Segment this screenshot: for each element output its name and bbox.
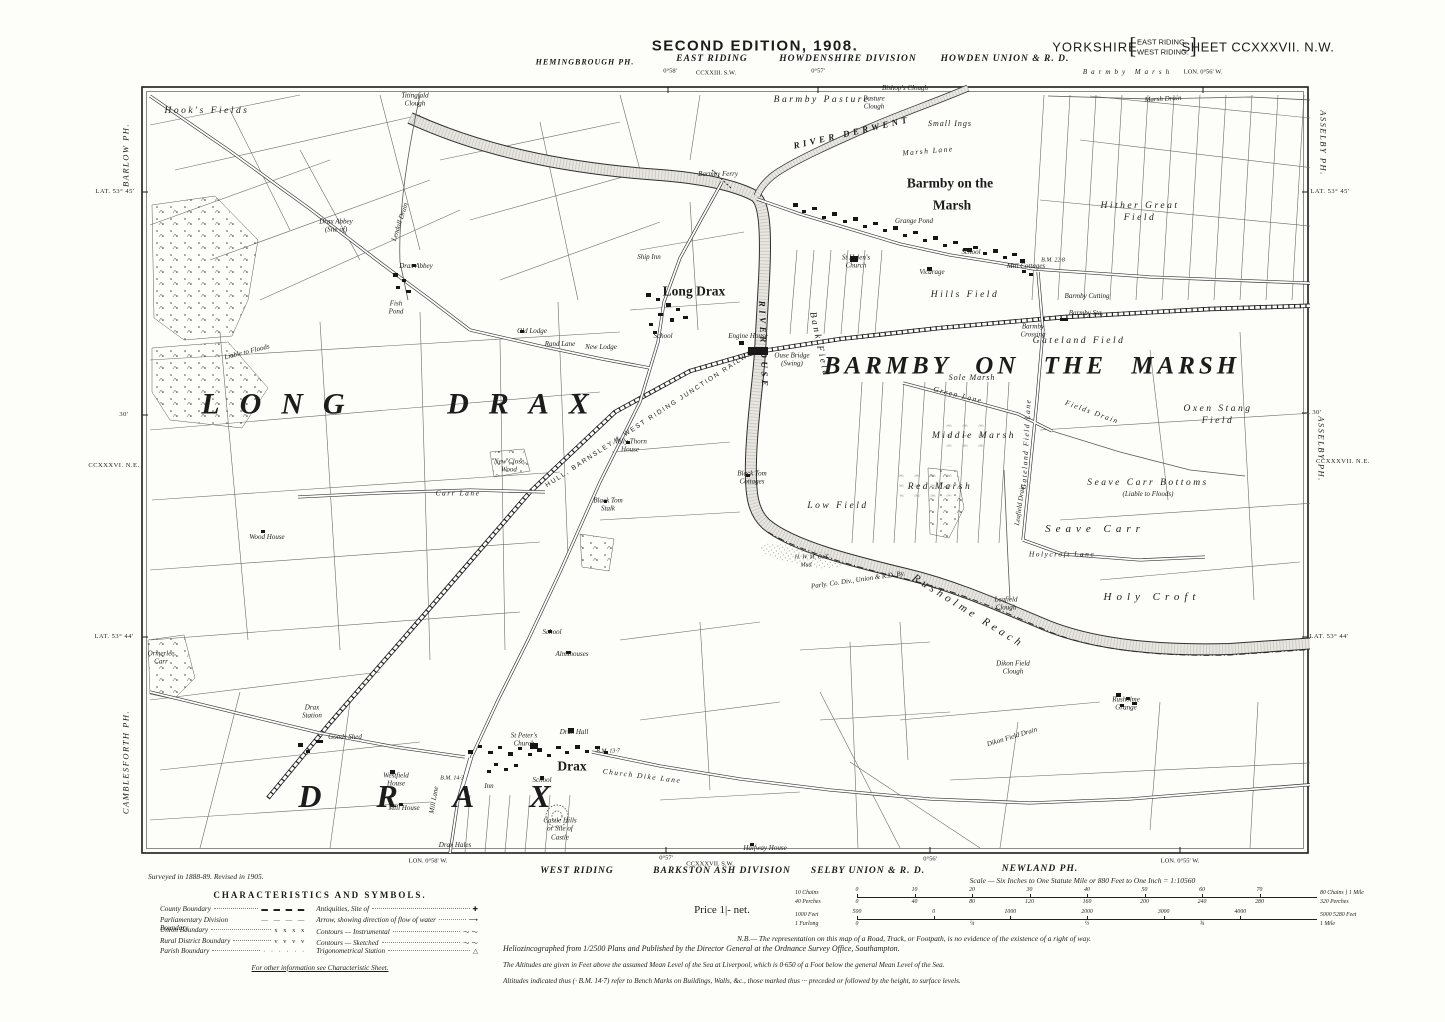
scale-tick-label: 10 Chains xyxy=(795,890,819,896)
union-label: HOWDEN UNION & R. D. xyxy=(941,54,1070,64)
scale-tick-label: 1 Furlong xyxy=(795,921,818,927)
scale-tick-label: 120 xyxy=(1025,899,1034,905)
ouse-swing-bridge xyxy=(748,347,768,355)
note-benchmarks: Altitudes indicated thus (· B.M. 14·7) r… xyxy=(503,977,961,985)
margin-label: 30' xyxy=(119,411,128,419)
scale-tick-label: 0 xyxy=(856,887,859,893)
legend-label: Arrow, showing direction of flow of wate… xyxy=(316,916,436,924)
scale-tick-label: 40 xyxy=(1084,887,1090,893)
scale-tick xyxy=(857,894,858,898)
margin-label: BARLOW PH. xyxy=(121,123,132,187)
scale-bar-chains: 10 Chains40 Perches010203040506070040801… xyxy=(795,887,1370,907)
scale-tick xyxy=(1145,894,1146,898)
legend-row: Antiquities, Site of✚ xyxy=(316,905,480,916)
legend: CHARACTERISTICS AND SYMBOLS. County Boun… xyxy=(160,890,480,972)
scale-tick xyxy=(1010,916,1011,920)
legend-leader xyxy=(393,931,460,932)
scale-tick-label: 50 xyxy=(1142,887,1148,893)
legend-leader xyxy=(212,950,260,951)
bracket-open: [ xyxy=(1129,34,1136,60)
lon-tick-bottom-3: 0°56' xyxy=(923,856,937,863)
legend-leader xyxy=(439,919,466,920)
map-canvas xyxy=(140,85,1310,855)
scale-tick-label: ½ xyxy=(1085,921,1089,927)
drains xyxy=(400,95,1310,600)
os-map-sheet: LONG DRAXBARMBY ON THE MARSHDRAXBarmby o… xyxy=(0,0,1445,1022)
scale-bar-feet: 1000 Feet1 Furlong500010002000300040000¼… xyxy=(795,909,1370,929)
lon-tick-058: 0°58' xyxy=(663,68,677,75)
west-riding-label: WEST RIDING xyxy=(540,866,614,876)
legend-symbol: v v v v xyxy=(274,938,306,945)
landmarks xyxy=(546,170,843,827)
scale-tick xyxy=(972,894,973,898)
scale-statement: Scale — Six Inches to One Statute Mile o… xyxy=(795,876,1370,885)
scale-tick-label: 40 Perches xyxy=(795,899,821,905)
scale-tick-label: ¾ xyxy=(1200,921,1204,927)
legend-row: Contours — Sketched〜〜 xyxy=(316,937,480,948)
legend-row: Union Boundaryx x x x xyxy=(160,926,306,937)
legend-label: Parish Boundary xyxy=(160,947,209,955)
scale-tick xyxy=(1240,916,1241,920)
scale-tick-label: 280 xyxy=(1255,899,1264,905)
legend-row: Rural District Boundaryv v v v xyxy=(160,937,306,948)
scale-tick xyxy=(857,916,858,920)
riding-label: EAST RIDING xyxy=(676,54,747,64)
legend-note: For other information see Characteristic… xyxy=(160,964,480,972)
legend-leader xyxy=(372,908,469,909)
adjacent-sheet-top: CCXXIII. S.W. xyxy=(696,70,736,77)
note-nb: N.B.— The representation on this map of … xyxy=(737,934,1091,943)
price-label: Price 1|- net. xyxy=(694,904,750,916)
margin-label: CCXXXVI. N.E. xyxy=(88,462,139,470)
legend-leader xyxy=(233,940,271,941)
legend-row: Trigonometrical Station△ xyxy=(316,947,480,958)
scale-tick-label: 500 xyxy=(853,909,862,915)
lon-tick-bottom-1: LON. 0°58' W. xyxy=(409,858,448,865)
legend-symbol: ✚ xyxy=(473,905,480,913)
survey-dates: Surveyed in 1888-89. Revised in 1905. xyxy=(148,872,264,881)
legend-right-column: Antiquities, Site of✚Arrow, showing dire… xyxy=(316,905,480,958)
castle-hills-earthwork xyxy=(546,805,568,827)
legend-symbol: ⟶ xyxy=(469,916,480,924)
legend-leader xyxy=(382,942,460,943)
scale-tick xyxy=(1087,894,1088,898)
scale-tick-label: 10 xyxy=(912,887,918,893)
scale-block: Scale — Six Inches to One Statute Mile o… xyxy=(795,876,1370,929)
scale-tick xyxy=(1164,916,1165,920)
legend-label: Contours — Sketched xyxy=(316,939,378,947)
scale-tick-label: 1000 Feet xyxy=(795,912,818,918)
lon-tick-057: 0°57' xyxy=(811,68,825,75)
lon-tick-bottom-2: 0°57' xyxy=(659,855,673,862)
legend-label: Contours — Instrumental xyxy=(316,928,389,936)
barkston-division-label: BARKSTON ASH DIVISION xyxy=(653,866,791,876)
legend-row: Arrow, showing direction of flow of wate… xyxy=(316,916,480,927)
legend-label: Union Boundary xyxy=(160,926,208,934)
woods xyxy=(148,196,994,699)
scale-tick-label: 1 Mile xyxy=(1320,921,1335,927)
lon-tick-056: LON. 0°56' W. xyxy=(1184,69,1223,76)
legend-symbol: · · · · · · xyxy=(263,948,306,955)
scale-tick xyxy=(915,894,916,898)
margin-label: CAMBLESFORTH PH. xyxy=(121,710,132,814)
river-derwent xyxy=(757,88,968,196)
scale-tick-label: 200 xyxy=(1140,899,1149,905)
selby-union-label: SELBY UNION & R. D. xyxy=(811,866,925,876)
edition-title: SECOND EDITION, 1908. xyxy=(652,38,859,55)
scale-tick-label: 240 xyxy=(1198,899,1207,905)
margin-label: CCXXXVII. N.E. xyxy=(1316,458,1370,466)
scale-tick-label: 0 xyxy=(856,899,859,905)
margin-label: ASSELBY PH. xyxy=(1318,110,1329,176)
legend-symbol: 〜〜 xyxy=(463,926,480,936)
scale-tick-label: 1000 xyxy=(1005,909,1017,915)
legend-label: Trigonometrical Station xyxy=(316,947,385,955)
scale-tick xyxy=(1030,894,1031,898)
scale-tick-label: 5000 5280 Feet xyxy=(1320,912,1356,918)
legend-symbol: x x x x xyxy=(274,927,306,934)
buildings xyxy=(261,203,1137,846)
note-altitudes: The Altitudes are given in Feet above th… xyxy=(503,961,945,969)
legend-leader xyxy=(214,908,258,909)
parish-hemingbrough: HEMINGBROUGH PH. xyxy=(536,58,635,67)
legend-row: County Boundary▬ ▬ ▬ ▬ xyxy=(160,905,306,916)
scale-tick-label: 0 xyxy=(856,921,859,927)
division-label: HOWDENSHIRE DIVISION xyxy=(779,54,916,64)
scale-tick xyxy=(1202,894,1203,898)
scale-tick-label: ¼ xyxy=(970,921,974,927)
barmby-marsh-label: Barmby Marsh xyxy=(1083,68,1173,76)
margin-label: LAT. 53° 45' xyxy=(95,188,134,196)
sheet-number: SHEET CCXXXVII. N.W. xyxy=(1182,40,1335,55)
margin-label: ASSELBY PH. xyxy=(1316,416,1327,482)
margin-label: LAT. 53° 45' xyxy=(1310,188,1349,196)
scale-tick-label: 3000 xyxy=(1158,909,1170,915)
scale-tick xyxy=(1087,916,1088,920)
legend-row: Contours — Instrumental〜〜 xyxy=(316,926,480,937)
note-heliozincographed: Heliozincographed from 1/2500 Plans and … xyxy=(503,944,900,953)
scale-tick-label: 60 xyxy=(1199,887,1205,893)
legend-label: County Boundary xyxy=(160,905,211,913)
scale-tick-label: 40 xyxy=(912,899,918,905)
scale-tick-label: 20 xyxy=(969,887,975,893)
scale-tick-label: 0 xyxy=(932,909,935,915)
scale-tick-label: 2000 xyxy=(1081,909,1093,915)
scale-tick-label: 4000 xyxy=(1235,909,1247,915)
scale-tick-label: 80 xyxy=(969,899,975,905)
legend-label: Antiquities, Site of xyxy=(316,905,369,913)
parish-newland: NEWLAND PH. xyxy=(1002,864,1078,874)
scale-tick-label: 80 Chains } 1 Mile xyxy=(1320,890,1364,896)
scale-tick xyxy=(934,916,935,920)
legend-leader xyxy=(388,950,470,951)
legend-symbol: ▬ ▬ ▬ ▬ xyxy=(261,906,306,913)
legend-symbol: 〜〜 xyxy=(463,937,480,947)
scale-tick-label: 160 xyxy=(1083,899,1092,905)
margin-label: LAT. 53° 44' xyxy=(94,633,133,641)
legend-row: Parliamentary Division Boundary— — — — xyxy=(160,916,306,927)
scale-tick xyxy=(1260,894,1261,898)
legend-label: Rural District Boundary xyxy=(160,937,230,945)
legend-leader xyxy=(211,929,271,930)
legend-title: CHARACTERISTICS AND SYMBOLS. xyxy=(160,890,480,900)
legend-symbol: △ xyxy=(473,947,480,955)
river-ouse xyxy=(410,118,1310,649)
legend-symbol: — — — — xyxy=(261,917,306,924)
scale-tick-label: 320 Perches xyxy=(1320,899,1349,905)
legend-row: Parish Boundary· · · · · · xyxy=(160,947,306,958)
margin-label: LAT. 53° 44' xyxy=(1309,633,1348,641)
county-label: YORKSHIRE xyxy=(1052,40,1138,55)
margin-label: 30' xyxy=(1312,409,1321,417)
legend-left-column: County Boundary▬ ▬ ▬ ▬Parliamentary Divi… xyxy=(160,905,306,958)
lon-tick-bottom-4: LON. 0°55' W. xyxy=(1161,858,1200,865)
scale-tick-label: 30 xyxy=(1027,887,1033,893)
boundary-line xyxy=(768,532,1310,655)
field-boundaries xyxy=(150,95,1310,852)
scale-tick-label: 70 xyxy=(1257,887,1263,893)
